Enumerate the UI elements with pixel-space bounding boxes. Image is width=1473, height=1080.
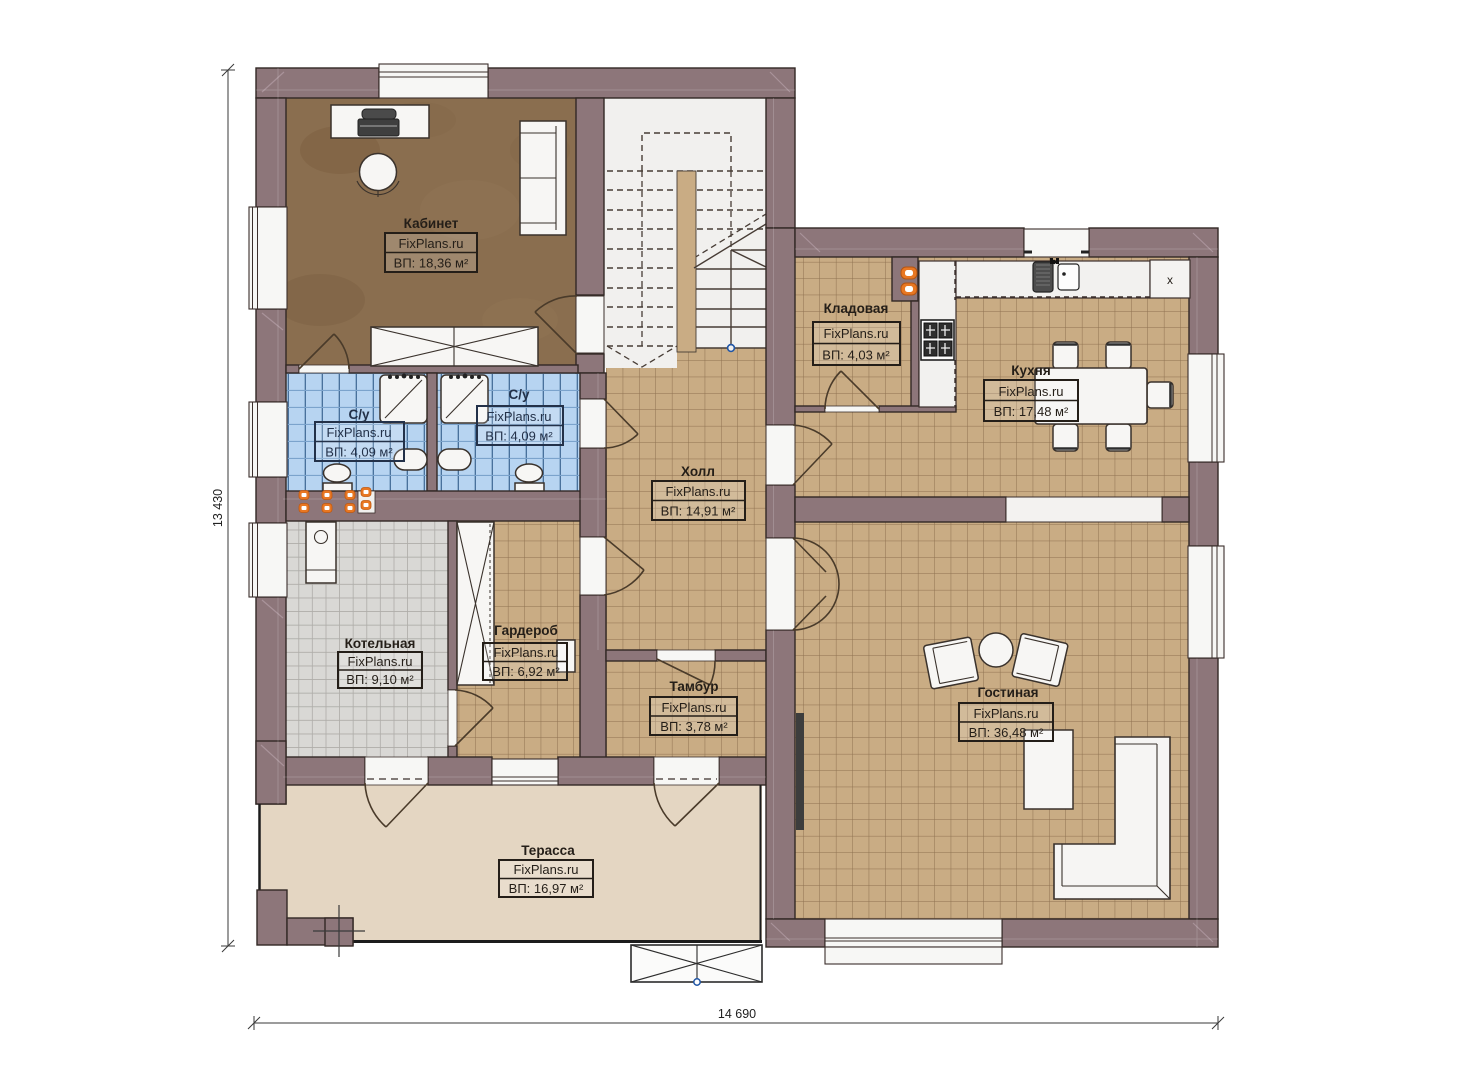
svg-text:x: x xyxy=(1167,273,1173,287)
svg-text:FixPlans.ru: FixPlans.ru xyxy=(398,236,463,251)
svg-text:ВП: 14,91 м²: ВП: 14,91 м² xyxy=(661,504,736,519)
svg-text:FixPlans.ru: FixPlans.ru xyxy=(326,425,391,440)
svg-text:Гостиная: Гостиная xyxy=(977,685,1038,700)
svg-text:Терасса: Терасса xyxy=(521,843,575,858)
svg-text:FixPlans.ru: FixPlans.ru xyxy=(513,862,578,877)
svg-text:Холл: Холл xyxy=(681,464,715,479)
svg-text:14 690: 14 690 xyxy=(718,1007,756,1021)
svg-text:FixPlans.ru: FixPlans.ru xyxy=(998,384,1063,399)
svg-text:FixPlans.ru: FixPlans.ru xyxy=(823,326,888,341)
svg-text:ВП: 16,97 м²: ВП: 16,97 м² xyxy=(509,881,584,896)
svg-text:С/у: С/у xyxy=(508,387,530,402)
svg-text:Тамбур: Тамбур xyxy=(670,679,719,694)
svg-text:FixPlans.ru: FixPlans.ru xyxy=(973,706,1038,721)
svg-text:ВП: 4,09 м²: ВП: 4,09 м² xyxy=(325,445,393,460)
svg-text:ВП: 18,36 м²: ВП: 18,36 м² xyxy=(394,256,469,271)
svg-text:13 430: 13 430 xyxy=(211,489,225,527)
svg-text:FixPlans.ru: FixPlans.ru xyxy=(486,409,551,424)
svg-text:FixPlans.ru: FixPlans.ru xyxy=(665,484,730,499)
svg-text:ВП: 4,03 м²: ВП: 4,03 м² xyxy=(822,348,890,363)
svg-text:ВП: 3,78 м²: ВП: 3,78 м² xyxy=(660,719,728,734)
svg-text:FixPlans.ru: FixPlans.ru xyxy=(661,700,726,715)
svg-text:FixPlans.ru: FixPlans.ru xyxy=(347,654,412,669)
svg-text:FixPlans.ru: FixPlans.ru xyxy=(493,645,558,660)
svg-text:Кладовая: Кладовая xyxy=(824,301,889,316)
svg-text:ВП: 36,48 м²: ВП: 36,48 м² xyxy=(969,725,1044,740)
svg-text:ВП: 6,92 м²: ВП: 6,92 м² xyxy=(492,664,560,679)
svg-text:Гардероб: Гардероб xyxy=(494,623,558,638)
svg-text:Кухня: Кухня xyxy=(1011,363,1050,378)
svg-text:ВП: 9,10 м²: ВП: 9,10 м² xyxy=(346,672,414,687)
svg-text:ВП: 4,09 м²: ВП: 4,09 м² xyxy=(485,429,553,444)
svg-text:Котельная: Котельная xyxy=(345,636,416,651)
svg-text:ВП: 17,48 м²: ВП: 17,48 м² xyxy=(994,404,1069,419)
svg-text:С/у: С/у xyxy=(348,407,370,422)
svg-text:Кабинет: Кабинет xyxy=(404,216,459,231)
